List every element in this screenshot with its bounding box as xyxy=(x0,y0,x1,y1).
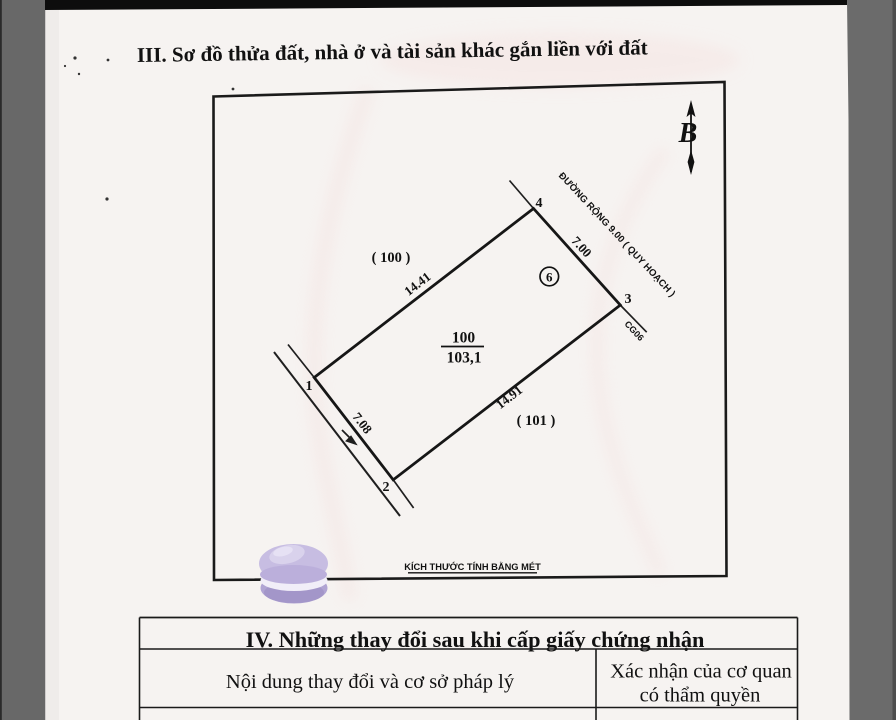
svg-text:2: 2 xyxy=(383,480,390,495)
svg-text:1: 1 xyxy=(306,379,313,394)
svg-text:6: 6 xyxy=(546,270,553,285)
svg-text:KÍCH THƯỚC TÍNH BẰNG MÉT: KÍCH THƯỚC TÍNH BẰNG MÉT xyxy=(404,561,541,572)
svg-text:4: 4 xyxy=(536,196,543,211)
svg-text:100: 100 xyxy=(452,330,476,347)
svg-text:Nội dung thay đổi và cơ sở phá: Nội dung thay đổi và cơ sở pháp lý xyxy=(226,671,515,693)
svg-text:( 100 ): ( 100 ) xyxy=(372,250,411,266)
svg-text:103,1: 103,1 xyxy=(447,350,482,367)
svg-text:( 101 ): ( 101 ) xyxy=(517,413,556,429)
svg-text:có thẩm quyền: có thẩm quyền xyxy=(640,685,761,707)
svg-text:Xác nhận của cơ quan: Xác nhận của cơ quan xyxy=(610,661,792,683)
svg-text:B: B xyxy=(678,118,698,149)
svg-text:3: 3 xyxy=(625,292,632,307)
